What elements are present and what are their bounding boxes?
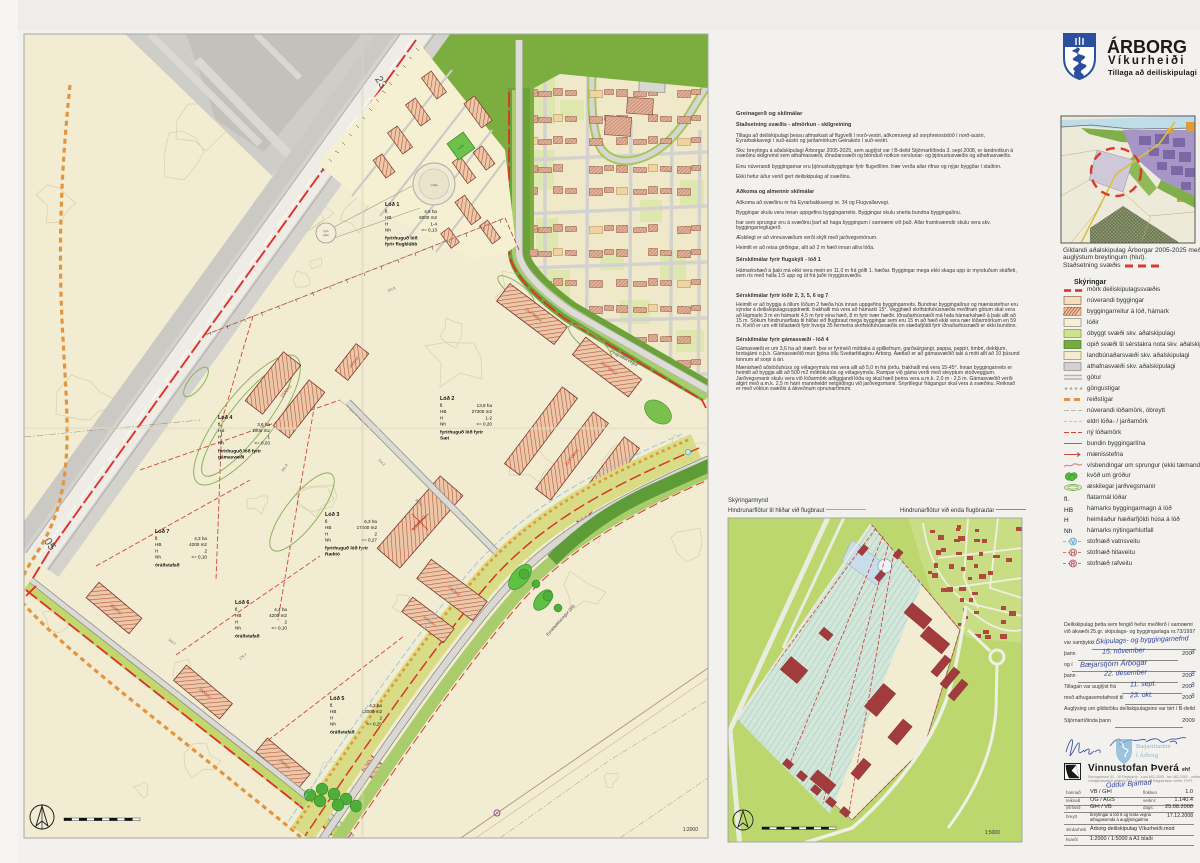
svg-text:þyrlu: þyrlu [323, 230, 329, 233]
svg-text:Lóð 5: Lóð 5 [330, 695, 344, 702]
svg-text:H: H [385, 221, 388, 226]
svg-text:4,6 ha: 4,6 ha [424, 209, 437, 214]
svg-text:H: H [440, 415, 443, 420]
svg-text:Ræktó: Ræktó [325, 551, 340, 557]
svg-text:H: H [1064, 517, 1069, 524]
svg-text:fl.: fl. [440, 403, 444, 408]
svg-text:V: V [1071, 540, 1075, 546]
svg-text:HB: HB [440, 409, 446, 414]
svg-text:gámasvæði: gámasvæði [218, 453, 244, 460]
svg-text:12000 m2: 12000 m2 [362, 709, 383, 714]
svg-text:1-2: 1-2 [485, 415, 492, 420]
svg-text:Lóð 2: Lóð 2 [440, 395, 454, 402]
svg-text:17000 m2: 17000 m2 [357, 525, 378, 530]
svg-text:Lóð 7: Lóð 7 [155, 528, 169, 535]
svg-text:HB: HB [330, 709, 336, 714]
svg-text:3,6 ha: 3,6 ha [257, 422, 270, 427]
svg-text:13,8 ha: 13,8 ha [477, 403, 493, 408]
svg-text:fl.: fl. [235, 607, 239, 612]
svg-text:fl.: fl. [330, 703, 334, 708]
svg-text:2: 2 [374, 531, 377, 536]
svg-text:R: R [1071, 562, 1076, 568]
svg-text:<= 0,20: <= 0,20 [476, 422, 492, 427]
svg-text:fyrirhuguð lóð fyrir: fyrirhuguð lóð fyrir [218, 447, 261, 454]
svg-text:H: H [330, 715, 333, 720]
svg-text:fyrirhuguð lóð: fyrirhuguð lóð [385, 234, 418, 241]
svg-text:HB: HB [385, 215, 391, 220]
svg-text:Sæt: Sæt [440, 435, 449, 441]
svg-text:HB: HB [235, 613, 241, 618]
svg-text:4200 m2: 4200 m2 [269, 613, 287, 618]
svg-text:4,3 ha: 4,3 ha [194, 536, 207, 541]
svg-text:2: 2 [204, 548, 207, 553]
svg-text:4,4 ha: 4,4 ha [274, 607, 287, 612]
svg-text:HB: HB [325, 525, 331, 530]
svg-text:Lóð 4: Lóð 4 [218, 414, 232, 421]
svg-text:1:5000: 1:5000 [985, 830, 1001, 836]
svg-text:óráðstafað: óráðstafað [330, 728, 355, 735]
svg-text:Nh: Nh [155, 555, 161, 560]
svg-text:1: 1 [267, 434, 270, 439]
svg-text:27300 m2: 27300 m2 [472, 409, 493, 414]
svg-text:2: 2 [379, 715, 382, 720]
svg-text:<= 0,10: <= 0,10 [191, 555, 207, 560]
svg-text:H: H [325, 531, 328, 536]
svg-text:2: 2 [284, 619, 287, 624]
svg-text:í Árborg: í Árborg [1136, 751, 1159, 759]
svg-text:H: H [218, 434, 221, 439]
svg-text:óráðstafað: óráðstafað [155, 561, 180, 568]
svg-text:miðja: miðja [430, 182, 438, 187]
svg-text:<= 0,10: <= 0,10 [271, 626, 287, 631]
svg-text:Lóð 1: Lóð 1 [385, 201, 399, 208]
svg-text:HB: HB [1064, 507, 1073, 514]
svg-text:<= 0,03: <= 0,03 [254, 441, 270, 446]
svg-text:Lóð 3: Lóð 3 [325, 511, 339, 518]
svg-text:<= 0,29: <= 0,29 [366, 722, 382, 727]
svg-text:Lóð 6: Lóð 6 [235, 599, 249, 606]
svg-text:Nh: Nh [325, 538, 331, 543]
svg-text:fl.: fl. [155, 536, 159, 541]
svg-text:HB: HB [155, 542, 161, 547]
svg-text:4200 m2: 4200 m2 [189, 542, 207, 547]
svg-text:6000 m2: 6000 m2 [419, 215, 437, 220]
svg-text:Nh: Nh [235, 626, 241, 631]
svg-text:H: H [1071, 551, 1075, 557]
svg-text:6,3 ha: 6,3 ha [364, 519, 377, 524]
svg-text:óráðstafað: óráðstafað [235, 632, 260, 639]
svg-text:Nh: Nh [440, 422, 446, 427]
svg-text:<= 0,13: <= 0,13 [421, 228, 437, 233]
svg-text:Nh: Nh [330, 722, 336, 727]
svg-text:fl.: fl. [218, 422, 222, 427]
svg-text:fyrir flugklúbb: fyrir flugklúbb [385, 241, 417, 247]
svg-text:1:2000: 1:2000 [683, 827, 699, 833]
svg-text:fl.: fl. [385, 209, 389, 214]
svg-text:4,2 ha: 4,2 ha [369, 703, 382, 708]
svg-text:1-4: 1-4 [430, 221, 437, 226]
svg-text:H: H [155, 548, 158, 553]
svg-text:fl.: fl. [1064, 496, 1069, 503]
svg-text:Nh: Nh [218, 441, 224, 446]
svg-text:pallur: pallur [323, 234, 329, 237]
svg-text:Bæjarritarinn: Bæjarritarinn [1136, 743, 1171, 750]
svg-text:Nh: Nh [1064, 528, 1073, 535]
svg-text:fl.: fl. [325, 519, 329, 524]
svg-text:H: H [235, 619, 238, 624]
svg-text:Nh: Nh [385, 228, 391, 233]
